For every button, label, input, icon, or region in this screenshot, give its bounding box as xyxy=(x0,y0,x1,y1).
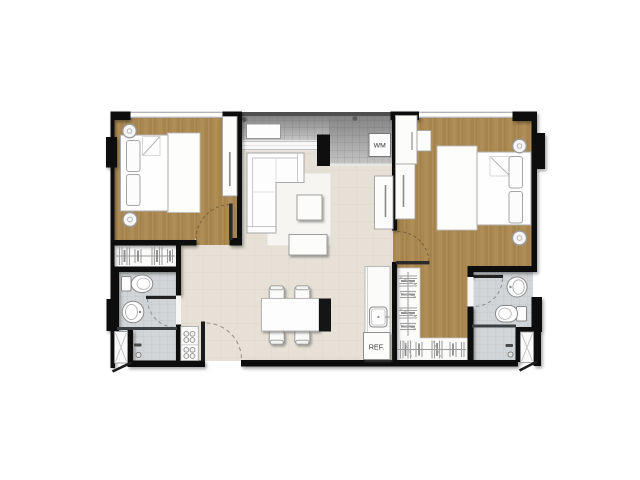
svg-text:REF.: REF. xyxy=(369,343,385,352)
svg-text:WM: WM xyxy=(374,143,386,150)
